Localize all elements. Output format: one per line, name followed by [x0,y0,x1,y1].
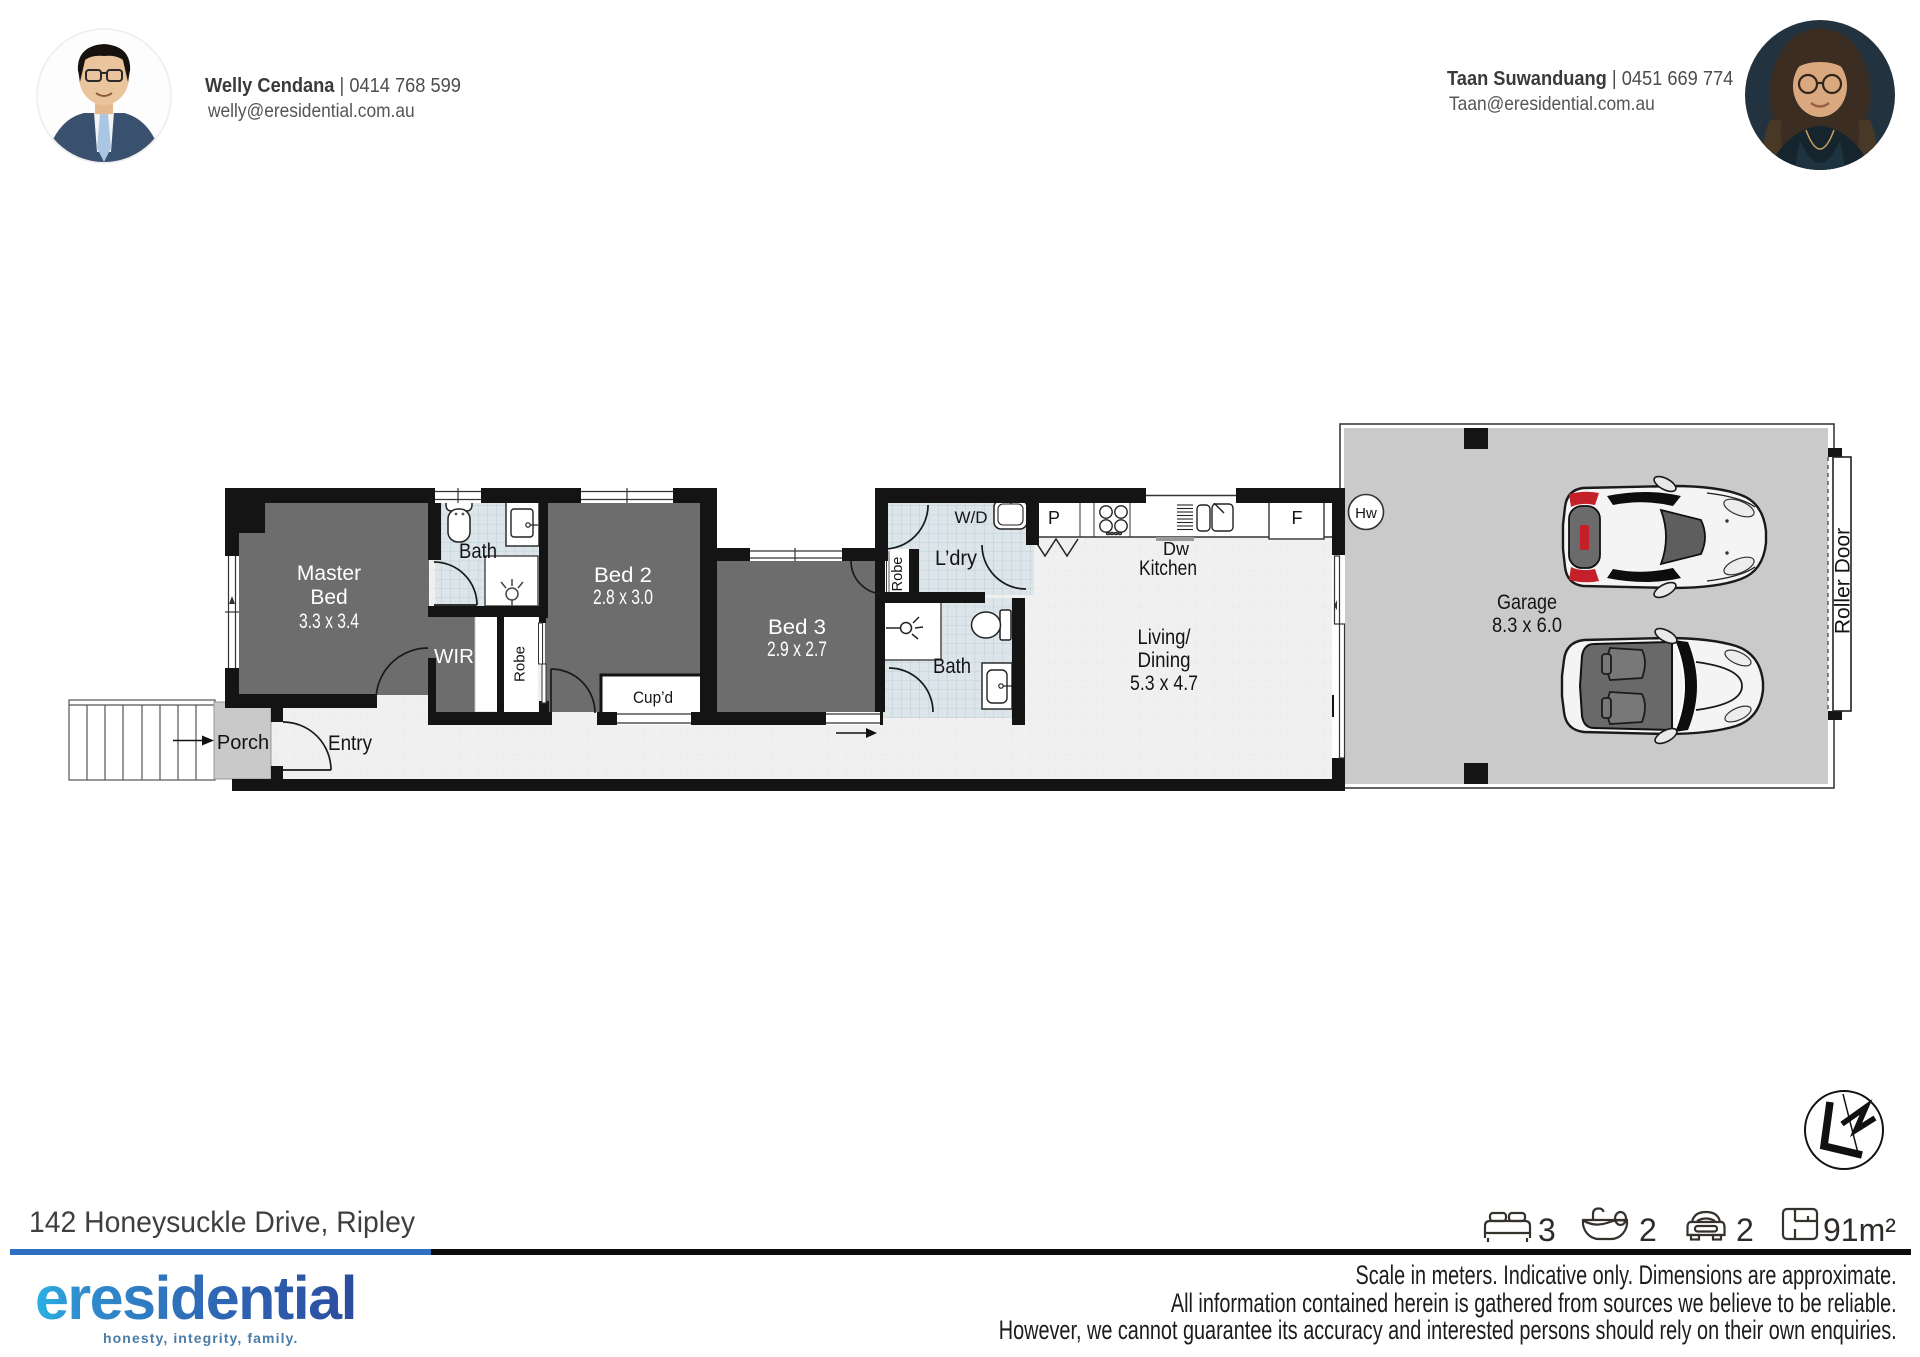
svg-text:WIR: WIR [434,646,474,668]
svg-text:Porch: Porch [217,732,269,754]
svg-text:W/D: W/D [954,508,987,527]
svg-text:2.9 x 2.7: 2.9 x 2.7 [767,638,827,661]
svg-text:91m²: 91m² [1823,1212,1896,1248]
svg-text:Robe: Robe [512,646,529,682]
svg-text:Dw: Dw [1163,539,1190,559]
svg-text:Master: Master [297,562,361,585]
svg-text:5.3 x 4.7: 5.3 x 4.7 [1130,672,1198,695]
svg-text:2: 2 [1736,1212,1754,1248]
svg-text:Dining: Dining [1138,649,1191,672]
svg-text:Bed 3: Bed 3 [768,616,826,639]
svg-text:Roller Door: Roller Door [1832,528,1855,634]
svg-text:Entry: Entry [328,732,372,755]
svg-text:Bed: Bed [310,586,347,609]
svg-text:eresidential: eresidential [35,1264,356,1332]
svg-text:Bath: Bath [933,655,971,678]
svg-text:2: 2 [1639,1212,1657,1248]
svg-text:Garage: Garage [1497,591,1557,614]
svg-text:3: 3 [1538,1212,1556,1248]
svg-text:Robe: Robe [890,557,906,592]
svg-text:honesty, integrity, family.: honesty, integrity, family. [103,1330,298,1346]
svg-text:3.3 x 3.4: 3.3 x 3.4 [299,610,359,633]
svg-text:2.8 x 3.0: 2.8 x 3.0 [593,586,653,609]
svg-text:8.3 x 6.0: 8.3 x 6.0 [1492,614,1562,637]
svg-text:P: P [1048,508,1060,528]
svg-text:Cup’d: Cup’d [633,688,673,707]
svg-text:Bed 2: Bed 2 [594,564,652,587]
svg-text:Kitchen: Kitchen [1139,557,1197,580]
svg-text:Bath: Bath [459,540,497,563]
svg-text:F: F [1292,508,1303,528]
svg-text:L’dry: L’dry [935,547,977,570]
svg-text:Hw: Hw [1355,505,1377,522]
svg-text:Living/: Living/ [1138,626,1191,649]
